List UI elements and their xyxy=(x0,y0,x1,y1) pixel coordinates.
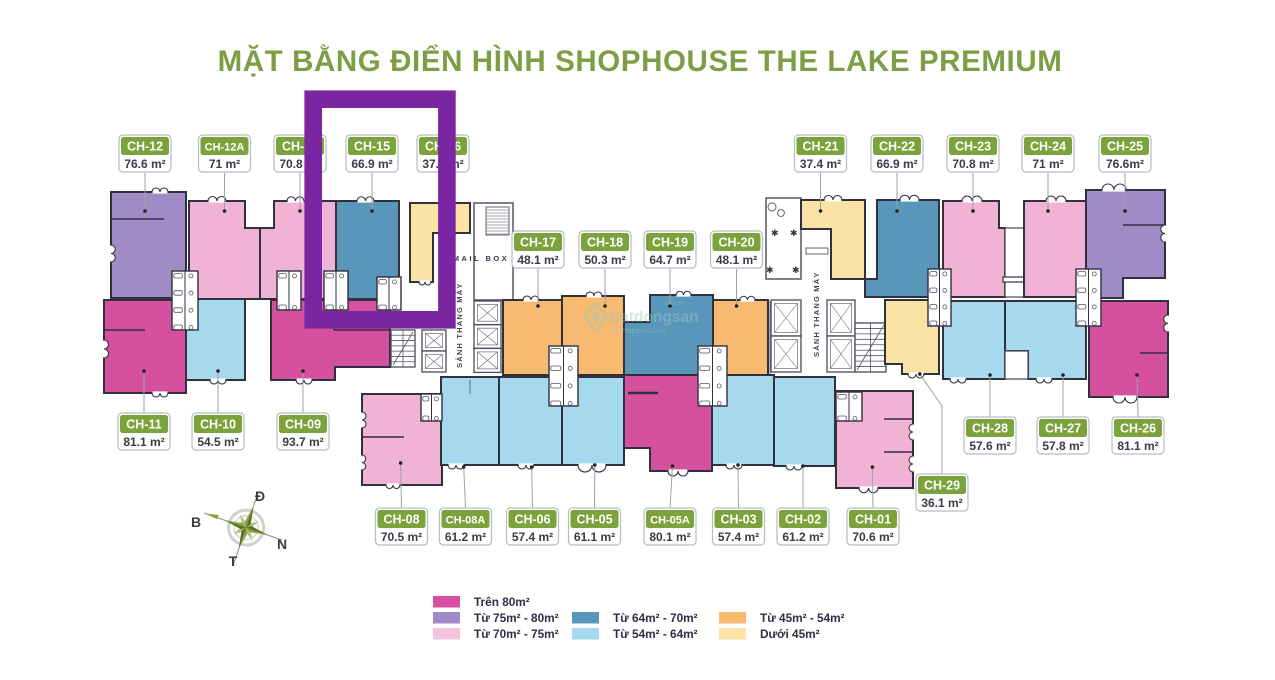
svg-text:SẢNH THANG MÁY: SẢNH THANG MÁY xyxy=(455,282,464,368)
svg-text:70.5 m²: 70.5 m² xyxy=(381,530,422,544)
svg-text:CH-12: CH-12 xyxy=(127,140,163,154)
svg-text:93.7 m²: 93.7 m² xyxy=(282,435,323,449)
svg-text:70.6 m²: 70.6 m² xyxy=(852,530,893,544)
svg-text:64.7 m²: 64.7 m² xyxy=(649,253,690,267)
svg-text:CH-27: CH-27 xyxy=(1045,422,1081,436)
svg-text:CH-01: CH-01 xyxy=(855,513,891,527)
svg-text:Từ 75m² - 80m²: Từ 75m² - 80m² xyxy=(474,611,559,625)
svg-text:CH-22: CH-22 xyxy=(879,140,915,154)
svg-text:48.1 m²: 48.1 m² xyxy=(716,253,757,267)
svg-text:CH-23: CH-23 xyxy=(955,140,991,154)
svg-text:81.1 m²: 81.1 m² xyxy=(123,435,164,449)
svg-text:CH-08A: CH-08A xyxy=(446,515,486,527)
svg-text:CH-10: CH-10 xyxy=(200,418,236,432)
svg-text:71 m²: 71 m² xyxy=(209,157,240,171)
svg-text:CH-29: CH-29 xyxy=(924,479,960,493)
svg-text:✱: ✱ xyxy=(790,228,798,238)
svg-text:CH-26: CH-26 xyxy=(1120,422,1156,436)
svg-text:Dưới 45m²: Dưới 45m² xyxy=(760,627,820,641)
svg-text:57.8 m²: 57.8 m² xyxy=(1042,439,1083,453)
svg-text:SẢNH THANG MÁY: SẢNH THANG MÁY xyxy=(812,271,821,357)
svg-text:70.8 m²: 70.8 m² xyxy=(952,157,993,171)
svg-text:✱: ✱ xyxy=(766,265,774,275)
svg-text:CH-09: CH-09 xyxy=(285,418,321,432)
svg-text:CH-05A: CH-05A xyxy=(650,515,690,527)
svg-text:CH-19: CH-19 xyxy=(652,236,688,250)
svg-text:Từ 70m² - 75m²: Từ 70m² - 75m² xyxy=(474,627,559,641)
svg-text:CH-08: CH-08 xyxy=(383,513,419,527)
svg-text:CH-12A: CH-12A xyxy=(205,142,245,154)
svg-text:N: N xyxy=(277,536,287,552)
svg-text:37.4 m²: 37.4 m² xyxy=(800,157,841,171)
svg-text:CH-15: CH-15 xyxy=(354,140,390,154)
svg-text:48.1 m²: 48.1 m² xyxy=(517,253,558,267)
svg-text:by PropertyGuru: by PropertyGuru xyxy=(610,326,665,335)
svg-text:57.6 m²: 57.6 m² xyxy=(969,439,1010,453)
svg-text:66.9 m²: 66.9 m² xyxy=(876,157,917,171)
svg-text:CH-20: CH-20 xyxy=(718,236,754,250)
svg-text:Từ 54m² - 64m²: Từ 54m² - 64m² xyxy=(613,627,698,641)
svg-text:CH-05: CH-05 xyxy=(576,513,612,527)
svg-text:Từ 45m² - 54m²: Từ 45m² - 54m² xyxy=(760,611,845,625)
svg-text:61.2 m²: 61.2 m² xyxy=(782,530,823,544)
svg-text:✱: ✱ xyxy=(792,265,800,275)
svg-text:CH-11: CH-11 xyxy=(126,418,161,432)
svg-text:CH-21: CH-21 xyxy=(802,140,838,154)
svg-text:B: B xyxy=(191,514,201,530)
svg-text:CH-25: CH-25 xyxy=(1107,140,1143,154)
svg-text:T: T xyxy=(229,553,238,569)
svg-text:36.1 m²: 36.1 m² xyxy=(921,496,962,510)
svg-text:MAIL BOX: MAIL BOX xyxy=(453,254,510,263)
svg-text:✱: ✱ xyxy=(771,228,779,238)
svg-text:61.1 m²: 61.1 m² xyxy=(574,530,615,544)
svg-text:CH-17: CH-17 xyxy=(520,236,556,250)
svg-text:76.6 m²: 76.6 m² xyxy=(124,157,165,171)
svg-text:CH-02: CH-02 xyxy=(785,513,821,527)
svg-text:CH-03: CH-03 xyxy=(720,513,756,527)
svg-text:MẶT BẰNG ĐIỂN HÌNH SHOPHOUSE T: MẶT BẰNG ĐIỂN HÌNH SHOPHOUSE THE LAKE PR… xyxy=(218,44,1063,78)
svg-text:61.2 m²: 61.2 m² xyxy=(445,530,486,544)
svg-text:76.6m²: 76.6m² xyxy=(1106,157,1144,171)
svg-text:50.3 m²: 50.3 m² xyxy=(584,253,625,267)
svg-text:CH-24: CH-24 xyxy=(1030,140,1066,154)
svg-text:81.1 m²: 81.1 m² xyxy=(1117,439,1158,453)
svg-text:Trên 80m²: Trên 80m² xyxy=(474,595,530,609)
svg-text:80.1 m²: 80.1 m² xyxy=(649,530,690,544)
svg-text:.com.vn: .com.vn xyxy=(662,300,685,307)
svg-text:CH-06: CH-06 xyxy=(514,513,550,527)
svg-text:CH-18: CH-18 xyxy=(587,236,623,250)
svg-text:57.4 m²: 57.4 m² xyxy=(718,530,759,544)
svg-text:Đ: Đ xyxy=(255,488,265,504)
svg-text:54.5 m²: 54.5 m² xyxy=(197,435,238,449)
svg-text:Từ 64m² - 70m²: Từ 64m² - 70m² xyxy=(613,611,698,625)
svg-text:57.4 m²: 57.4 m² xyxy=(512,530,553,544)
svg-text:CH-28: CH-28 xyxy=(972,422,1008,436)
svg-text:71 m²: 71 m² xyxy=(1032,157,1063,171)
svg-text:66.9 m²: 66.9 m² xyxy=(351,157,392,171)
svg-text:Batdongsan: Batdongsan xyxy=(609,309,699,326)
